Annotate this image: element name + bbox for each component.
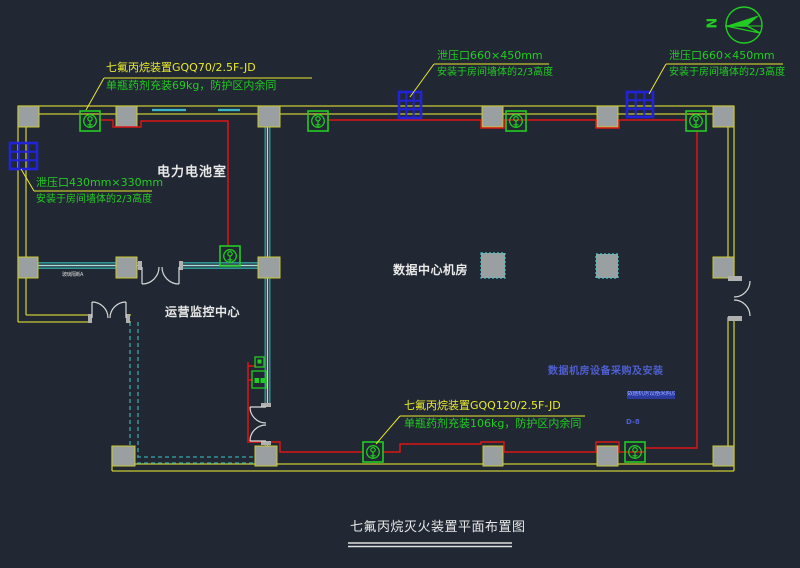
door-partition-vertical[interactable]: [250, 403, 271, 445]
room-label-battery: 电力电池室: [157, 166, 227, 180]
north-arrow-icon: [725, 7, 762, 43]
room-label-data-center: 数据中心机房: [393, 264, 468, 277]
north-label: N: [706, 18, 720, 29]
label-vent-mid-size: 泄压口660×450mm: [437, 50, 543, 62]
label-vent-mid-install: 安装于房间墙体的2/3高度: [437, 67, 553, 78]
title-underline: [348, 543, 512, 547]
pressure-relief-vent-icons[interactable]: [10, 92, 653, 169]
label-vent-right-size: 泄压口660×450mm: [669, 50, 775, 62]
label-gqq70-model: 七氟丙烷装置GQQ70/2.5F-JD: [106, 62, 256, 74]
project-note: 数据机房设备采购及安装: [548, 366, 664, 377]
interior-columns: [481, 253, 618, 278]
label-vent-left-size: 泄压口430mm×330mm: [36, 177, 163, 189]
room-label-monitor: 运营监控中心: [165, 306, 240, 319]
columns: [18, 106, 734, 466]
label-gqq120-charge: 单瓶药剂充装106kg，防护区内余同: [404, 418, 581, 430]
label-vent-right-install: 安装于房间墙体的2/3高度: [669, 67, 785, 78]
partition-note: 玻璃隔断A: [62, 273, 83, 279]
label-gqq120-model: 七氟丙烷装置GQQ120/2.5F-JD: [404, 400, 561, 412]
label-gqq70-charge: 单瓶药剂充装69kg，防护区内余同: [106, 80, 276, 92]
extinguisher-device-icons[interactable]: [80, 111, 706, 462]
glass-partition-walls: [26, 127, 270, 446]
label-vent-left-install: 安装于房间墙体的2/3高度: [36, 194, 152, 205]
exterior-walls: [18, 106, 734, 471]
door-left-entrance[interactable]: [88, 302, 130, 323]
control-box-icons[interactable]: [252, 357, 266, 388]
drawing-title: 七氟丙烷灭火装置平面布置图: [350, 521, 526, 535]
door-partition-horizontal[interactable]: [138, 261, 183, 284]
floor-plan-canvas: 七氟丙烷装置GQQ70/2.5F-JD 单瓶药剂充装69kg，防护区内余同 泄压…: [0, 0, 800, 568]
door-right-exterior[interactable]: [728, 276, 750, 321]
ref-code: D-8: [626, 419, 640, 427]
dashed-partition-walls: [130, 322, 264, 463]
highlighted-note[interactable]: 数据机房设备采购及安装: [627, 391, 675, 399]
